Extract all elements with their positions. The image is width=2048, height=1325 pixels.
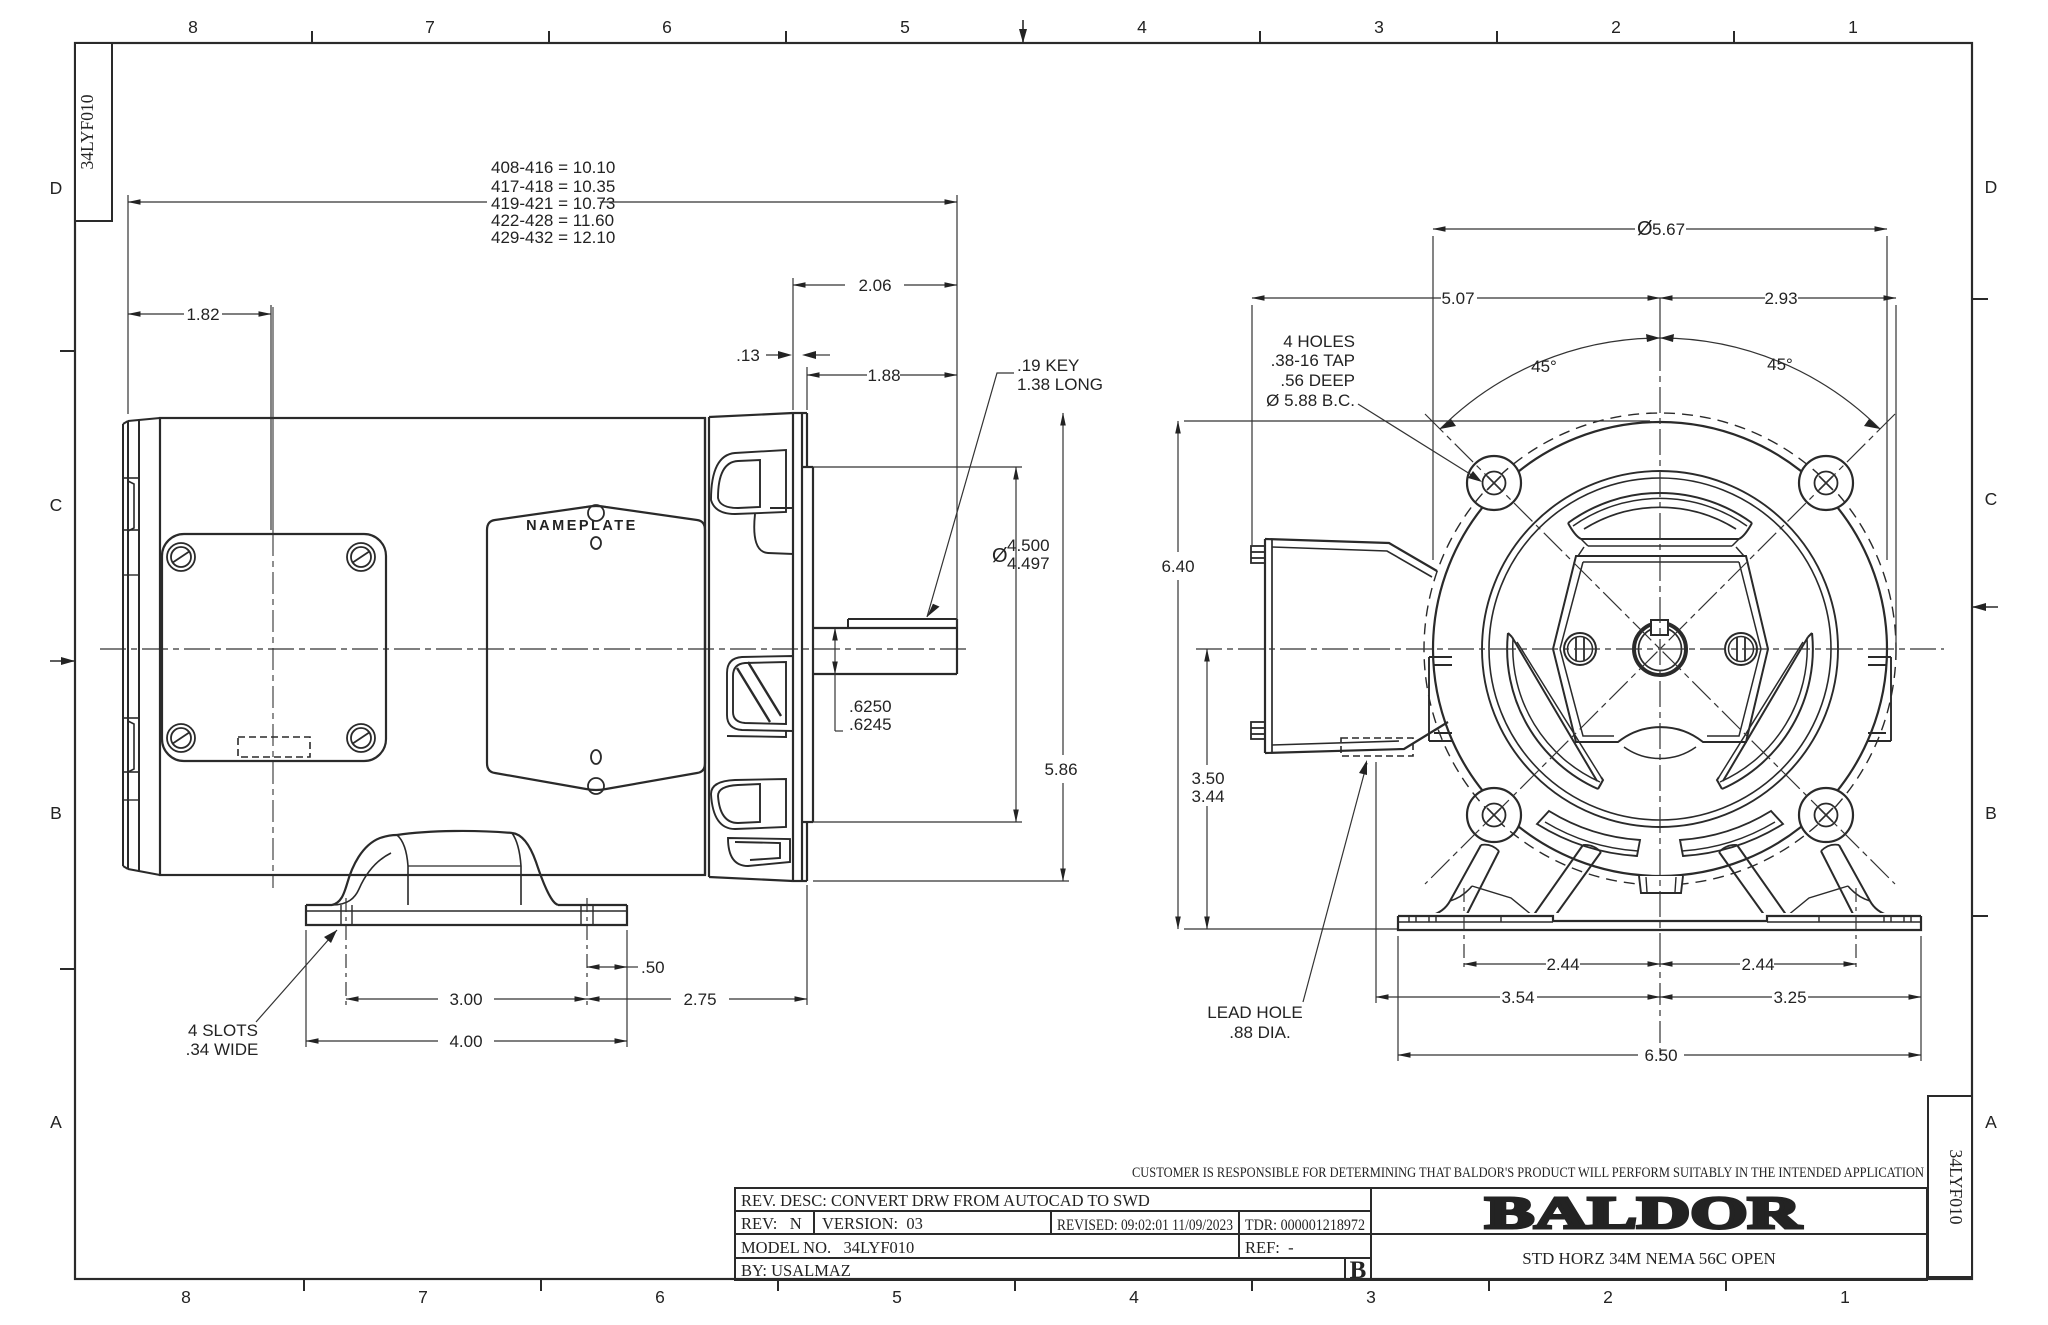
svg-text:429-432 = 12.10: 429-432 = 12.10 [491, 228, 615, 247]
svg-text:4.497: 4.497 [1007, 554, 1050, 573]
svg-text:REV: N: REV: N [741, 1214, 802, 1233]
svg-text:LEAD HOLE: LEAD HOLE [1207, 1003, 1302, 1022]
svg-text:BY: USALMAZ: BY: USALMAZ [741, 1261, 851, 1280]
svg-text:5.86: 5.86 [1044, 760, 1077, 779]
svg-text:2.44: 2.44 [1741, 955, 1774, 974]
svg-text:45°: 45° [1767, 355, 1793, 374]
svg-text:D: D [1985, 177, 1998, 197]
svg-text:1.88: 1.88 [867, 366, 900, 385]
svg-text:VERSION: 03: VERSION: 03 [822, 1214, 923, 1233]
svg-text:B: B [50, 803, 62, 823]
svg-text:3: 3 [1374, 17, 1384, 37]
svg-text:3: 3 [1366, 1287, 1376, 1307]
svg-text:6.50: 6.50 [1644, 1046, 1677, 1065]
svg-text:5: 5 [900, 17, 910, 37]
svg-text:3.54: 3.54 [1501, 988, 1534, 1007]
svg-text:TDR: 000001218972: TDR: 000001218972 [1245, 1217, 1365, 1234]
svg-text:3.25: 3.25 [1773, 988, 1806, 1007]
svg-text:4.500: 4.500 [1007, 536, 1050, 555]
svg-text:2: 2 [1603, 1287, 1613, 1307]
svg-text:.50: .50 [641, 958, 665, 977]
svg-text:.34 WIDE: .34 WIDE [186, 1040, 259, 1059]
svg-text:45°: 45° [1531, 357, 1557, 376]
svg-text:A: A [50, 1112, 62, 1132]
svg-text:2.75: 2.75 [683, 990, 716, 1009]
svg-text:REF: -: REF: - [1245, 1238, 1294, 1257]
svg-text:B: B [1985, 803, 1997, 823]
svg-text:4: 4 [1137, 17, 1147, 37]
svg-text:5: 5 [892, 1287, 902, 1307]
svg-text:4 HOLES: 4 HOLES [1283, 332, 1355, 351]
svg-text:5.07: 5.07 [1441, 289, 1474, 308]
svg-text:REVISED: 09:02:01 11/09/2023: REVISED: 09:02:01 11/09/2023 [1057, 1217, 1233, 1234]
svg-text:2.44: 2.44 [1546, 955, 1579, 974]
svg-text:8: 8 [188, 17, 198, 37]
svg-text:3.50: 3.50 [1191, 769, 1224, 788]
svg-text:C: C [1985, 489, 1998, 509]
svg-text:.19 KEY: .19 KEY [1017, 356, 1079, 375]
svg-text:1: 1 [1840, 1287, 1850, 1307]
svg-text:6.40: 6.40 [1161, 557, 1194, 576]
svg-text:D: D [50, 178, 63, 198]
svg-text:C: C [50, 495, 63, 515]
svg-text:2.93: 2.93 [1764, 289, 1797, 308]
svg-text:B: B [1350, 1257, 1367, 1284]
svg-text:1: 1 [1848, 17, 1858, 37]
svg-text:3.44: 3.44 [1191, 787, 1224, 806]
svg-text:34LYF010: 34LYF010 [1946, 1149, 1966, 1224]
svg-text:MODEL NO. 34LYF010: MODEL NO. 34LYF010 [741, 1238, 914, 1257]
svg-text:NAMEPLATE: NAMEPLATE [526, 518, 638, 534]
svg-text:8: 8 [181, 1287, 191, 1307]
svg-text:7: 7 [425, 17, 435, 37]
svg-text:34LYF010: 34LYF010 [77, 94, 97, 169]
svg-text:Ø: Ø [1637, 218, 1653, 240]
svg-text:REV. DESC: CONVERT DRW FROM AU: REV. DESC: CONVERT DRW FROM AUTOCAD TO S… [741, 1191, 1150, 1210]
svg-text:A: A [1985, 1112, 1997, 1132]
svg-text:408-416 = 10.10: 408-416 = 10.10 [491, 158, 615, 177]
svg-text:6: 6 [655, 1287, 665, 1307]
svg-text:3.00: 3.00 [449, 990, 482, 1009]
svg-text:4 SLOTS: 4 SLOTS [188, 1021, 258, 1040]
svg-text:7: 7 [418, 1287, 428, 1307]
svg-text:6: 6 [662, 17, 672, 37]
svg-text:1.38 LONG: 1.38 LONG [1017, 375, 1103, 394]
svg-text:1.82: 1.82 [186, 305, 219, 324]
svg-text:.6250: .6250 [849, 697, 892, 716]
svg-text:BALDOR: BALDOR [1485, 1188, 1802, 1238]
svg-text:.6245: .6245 [849, 715, 892, 734]
svg-text:Ø: Ø [992, 545, 1008, 567]
svg-text:2.06: 2.06 [858, 276, 891, 295]
svg-text:5.67: 5.67 [1652, 220, 1685, 239]
svg-text:.88 DIA.: .88 DIA. [1229, 1023, 1290, 1042]
svg-text:4.00: 4.00 [449, 1032, 482, 1051]
svg-text:Ø 5.88 B.C.: Ø 5.88 B.C. [1266, 391, 1355, 410]
svg-text:CUSTOMER IS RESPONSIBLE FOR DE: CUSTOMER IS RESPONSIBLE FOR DETERMINING … [1132, 1165, 1924, 1181]
svg-text:STD HORZ 34M NEMA 56C OPEN: STD HORZ 34M NEMA 56C OPEN [1522, 1249, 1776, 1268]
svg-text:4: 4 [1129, 1287, 1139, 1307]
svg-text:.38-16 TAP: .38-16 TAP [1271, 351, 1355, 370]
svg-text:2: 2 [1611, 17, 1621, 37]
svg-text:.56 DEEP: .56 DEEP [1280, 371, 1355, 390]
svg-text:.13: .13 [736, 346, 760, 365]
